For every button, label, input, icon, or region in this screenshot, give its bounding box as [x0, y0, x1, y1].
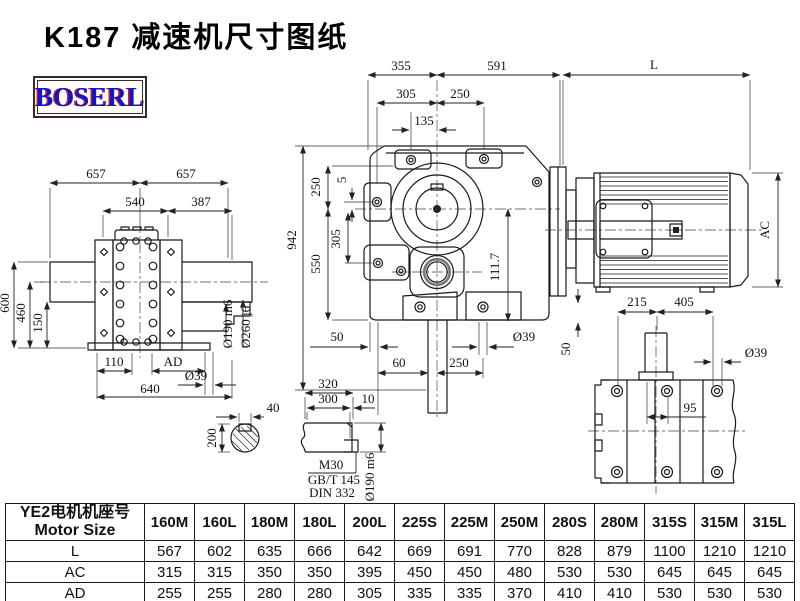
row-label: AC: [6, 562, 145, 583]
table-cell: 530: [645, 583, 695, 601]
dim-305-top: 305: [396, 86, 416, 101]
table-cell: 410: [545, 583, 595, 601]
table-cell: 450: [395, 562, 445, 583]
base-left-edge: [595, 380, 610, 483]
dim-600: 600: [0, 293, 12, 313]
table-cell: 255: [145, 583, 195, 601]
dim-405: 405: [674, 294, 694, 309]
table-col-header: 160M: [145, 504, 195, 541]
drawing-sheet: K187 减速机尺寸图纸 BOSERL: [0, 0, 800, 601]
motor-size-header-cn: YE2电机机座号: [6, 504, 144, 522]
table-cell: 691: [445, 541, 495, 562]
dim-150: 150: [30, 313, 45, 333]
table-cell: 530: [595, 562, 645, 583]
dim-640: 640: [140, 381, 160, 396]
table-header-row: YE2电机机座号Motor Size160M160L180M180L200L22…: [6, 504, 795, 541]
table-cell: 315: [145, 562, 195, 583]
dim-320: 320: [318, 376, 338, 391]
dim-10: 10: [362, 391, 375, 406]
dim-215: 215: [627, 294, 647, 309]
dim-260-side: Ø260 j6: [238, 305, 253, 348]
table-cell: 450: [445, 562, 495, 583]
table-cell: 828: [545, 541, 595, 562]
table-cell: 255: [195, 583, 245, 601]
table-cell: 280: [295, 583, 345, 601]
dim-305-left: 305: [328, 229, 343, 249]
table-cell: 315: [195, 562, 245, 583]
label-M30: M30: [319, 457, 344, 472]
table-col-header: 180M: [245, 504, 295, 541]
dim-50-left: 50: [331, 329, 344, 344]
dim-5: 5: [334, 177, 349, 184]
dim-L: L: [650, 57, 658, 72]
dim-550: 550: [308, 254, 323, 274]
table-cell: 370: [495, 583, 545, 601]
label-DIN-332: DIN 332: [309, 485, 355, 500]
motor-adapter: [576, 178, 594, 283]
dim-250-top: 250: [450, 86, 470, 101]
row-label: L: [6, 541, 145, 562]
dim-591: 591: [487, 58, 507, 73]
table-col-header: 315S: [645, 504, 695, 541]
mounting-feet: [88, 343, 210, 350]
dim-111-7: 111.7: [487, 252, 502, 281]
table-cell: 602: [195, 541, 245, 562]
dim-200: 200: [204, 428, 219, 448]
dim-110: 110: [104, 354, 123, 369]
dim-39-front: Ø39: [513, 329, 535, 344]
shaft-side-detail: 320 300 10 M30 GB/T 145 DIN 332 Ø190 m6: [301, 376, 386, 501]
base-top-view: 215 405 Ø39 95: [588, 294, 767, 494]
dimension-drawing: 657 657 540 387 600 460 150 110: [0, 0, 800, 503]
table-cell: 280: [245, 583, 295, 601]
row-label: AD: [6, 583, 145, 601]
table-cell: 642: [345, 541, 395, 562]
foot-right: [466, 292, 521, 320]
dim-250-left: 250: [308, 177, 323, 197]
shaft-end-detail: 40 200: [204, 400, 280, 452]
table-cell: 530: [545, 562, 595, 583]
dim-40: 40: [267, 400, 280, 415]
table-cell: 645: [695, 562, 745, 583]
table-cell: 770: [495, 541, 545, 562]
dim-355: 355: [391, 58, 411, 73]
dim-39-base: Ø39: [745, 345, 767, 360]
dim-250-bottom: 250: [449, 355, 469, 370]
table-col-header: 160L: [195, 504, 245, 541]
dim-95: 95: [684, 400, 697, 415]
table-cell: 666: [295, 541, 345, 562]
gearbox-side-view: 657 657 540 387 600 460 150 110: [0, 166, 268, 399]
dim-942: 942: [284, 230, 299, 250]
table-col-header: 280S: [545, 504, 595, 541]
table-col-header: 280M: [595, 504, 645, 541]
table-cell: 1210: [695, 541, 745, 562]
dim-657-left: 657: [86, 166, 106, 181]
table-cell: 669: [395, 541, 445, 562]
table-cell: 530: [695, 583, 745, 601]
table-cell: 645: [645, 562, 695, 583]
dim-540: 540: [125, 194, 145, 209]
dim-300: 300: [318, 391, 338, 406]
motor-size-header-en: Motor Size: [6, 522, 144, 540]
dim-50-right: 50: [558, 343, 573, 356]
dim-60: 60: [393, 355, 406, 370]
table-col-header: 250M: [495, 504, 545, 541]
table-row: AD25525528028030533533537041041053053053…: [6, 583, 795, 601]
table-col-header: 315M: [695, 504, 745, 541]
housing-body: [113, 240, 160, 350]
dim-190-side: Ø190 m6: [220, 299, 235, 348]
table-cell: 879: [595, 541, 645, 562]
table-cell: 395: [345, 562, 395, 583]
shaft-body: [305, 423, 352, 452]
flange-bolt-holes: [101, 238, 175, 345]
housing-outline: [370, 146, 549, 320]
table-col-header: 200L: [345, 504, 395, 541]
table-row: AC31531535035039545045048053053064564564…: [6, 562, 795, 583]
dim-AC: AC: [757, 221, 772, 239]
dim-AD: AD: [164, 354, 183, 369]
table-col-header: 315L: [745, 504, 795, 541]
dim-190-shaft: Ø190 m6: [362, 452, 377, 501]
break-line: [732, 380, 735, 483]
foot-left: [403, 292, 457, 320]
table-cell: 530: [745, 583, 795, 601]
table-cell: 645: [745, 562, 795, 583]
dim-39-side: Ø39: [185, 368, 207, 383]
table-col-header: 225S: [395, 504, 445, 541]
motor-size-header: YE2电机机座号Motor Size: [6, 504, 145, 541]
table-cell: 335: [445, 583, 495, 601]
table-cell: 1100: [645, 541, 695, 562]
motor-view: AC: [545, 167, 783, 296]
table-cell: 350: [295, 562, 345, 583]
dim-135: 135: [414, 113, 434, 128]
table-cell: 480: [495, 562, 545, 583]
table-cell: 410: [595, 583, 645, 601]
table-row: L567602635666642669691770828879110012101…: [6, 541, 795, 562]
table-cell: 1210: [745, 541, 795, 562]
table-cell: 335: [395, 583, 445, 601]
table-col-header: 225M: [445, 504, 495, 541]
dim-387: 387: [191, 194, 211, 209]
dim-460: 460: [13, 303, 28, 323]
table-cell: 305: [345, 583, 395, 601]
table-cell: 350: [245, 562, 295, 583]
table-cell: 635: [245, 541, 295, 562]
top-lug-right: [466, 149, 502, 168]
table-col-header: 180L: [295, 504, 345, 541]
table-cell: 567: [145, 541, 195, 562]
motor-size-table: YE2电机机座号Motor Size160M160L180M180L200L22…: [5, 503, 795, 601]
dim-657-right: 657: [176, 166, 196, 181]
